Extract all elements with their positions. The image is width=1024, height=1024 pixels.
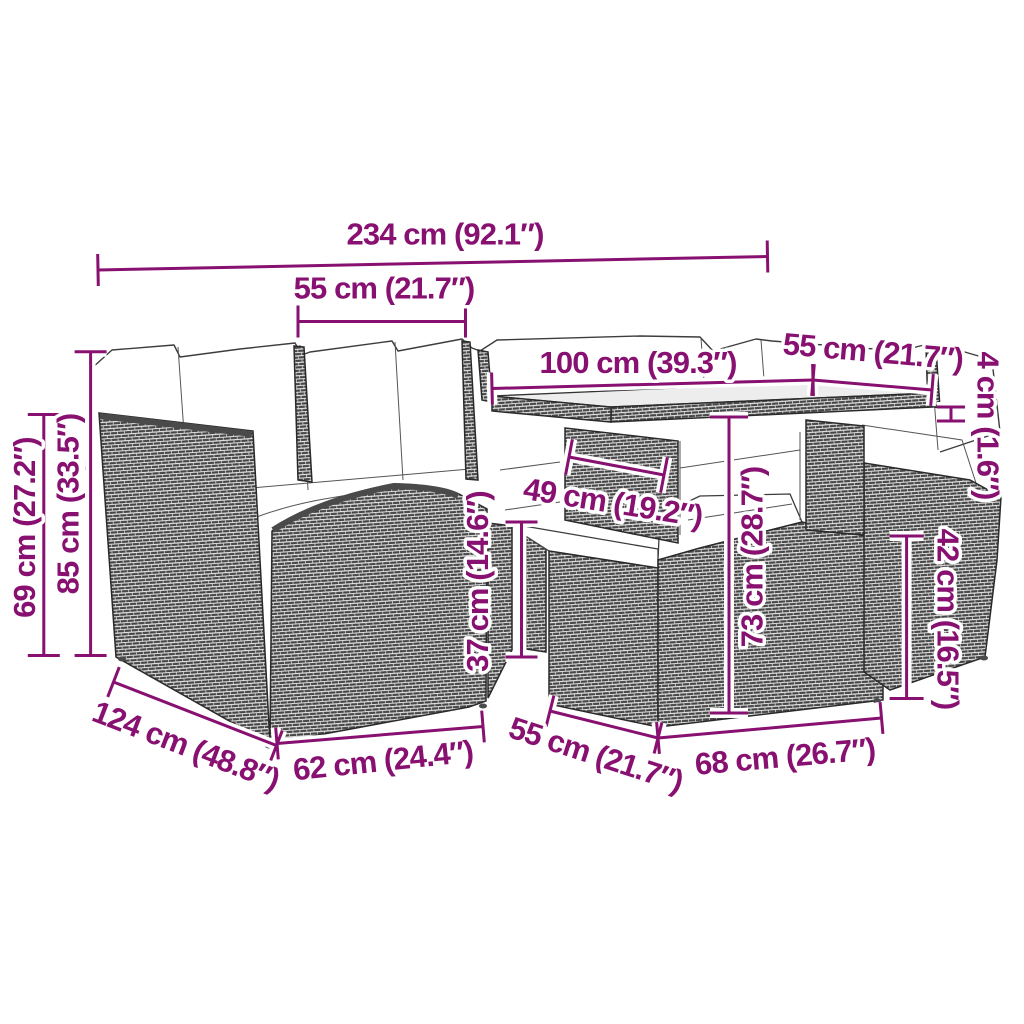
svg-text:73 cm (28.7″): 73 cm (28.7″) (735, 467, 770, 648)
svg-text:4 cm (1.6″): 4 cm (1.6″) (971, 352, 1006, 500)
svg-text:69 cm (27.2″): 69 cm (27.2″) (7, 437, 42, 618)
svg-text:37 cm (14.6″): 37 cm (14.6″) (460, 491, 495, 672)
svg-text:85 cm (33.5″): 85 cm (33.5″) (50, 414, 85, 595)
svg-text:100 cm (39.3″): 100 cm (39.3″) (540, 345, 737, 380)
svg-text:42 cm (16.5″): 42 cm (16.5″) (931, 529, 966, 710)
svg-text:55 cm (21.7″): 55 cm (21.7″) (294, 271, 475, 306)
svg-text:234 cm (92.1″): 234 cm (92.1″) (347, 217, 544, 252)
